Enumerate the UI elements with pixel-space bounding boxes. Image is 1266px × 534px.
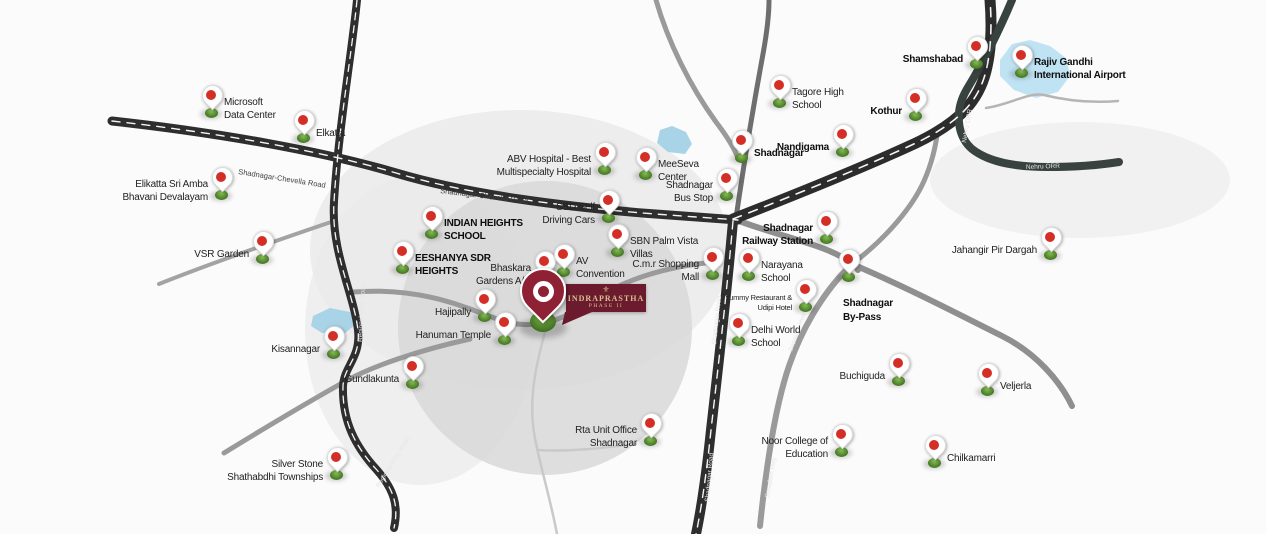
location-label-kisannagar: Kisannagar bbox=[271, 343, 320, 357]
location-label-yummy-restaurant-udipi-hotel: Yummy Restaurant &Udipi Hotel bbox=[725, 293, 792, 313]
pin-dot bbox=[216, 172, 226, 182]
pin-dot bbox=[743, 253, 753, 263]
location-label-silver-stone-shathabdhi-townships: Silver StoneShathabdhi Townships bbox=[227, 458, 323, 485]
location-map: Shadnagar-Chevella RoadShadnagar-Chevell… bbox=[0, 0, 1266, 534]
location-label-shadnagar-bus-stop: ShadnagarBus Stop bbox=[666, 179, 713, 206]
pin-dot bbox=[640, 152, 650, 162]
pin-core bbox=[538, 286, 549, 297]
pin-dot bbox=[206, 90, 216, 100]
pin-dot bbox=[843, 254, 853, 264]
location-label-jahangir-pir-dargah: Jahangir Pir Dargah bbox=[952, 244, 1037, 258]
pin-dot bbox=[603, 195, 613, 205]
pin-dot bbox=[257, 236, 267, 246]
pin-dot bbox=[397, 246, 407, 256]
airport-boundary-road bbox=[986, 95, 1118, 108]
shadnagar-town-road bbox=[736, 0, 769, 218]
location-label-cmr-shopping-mall: C.m.r ShoppingMall bbox=[632, 258, 699, 285]
pin-dot bbox=[558, 249, 568, 259]
property-phase: PHASE II bbox=[589, 303, 623, 310]
pin-dot bbox=[479, 294, 489, 304]
pin-dot bbox=[821, 216, 831, 226]
road-label: Shadnagar-Chevella Road bbox=[238, 167, 327, 190]
location-label-narayana-school: NarayanaSchool bbox=[761, 259, 803, 286]
pin-dot bbox=[929, 440, 939, 450]
property-crest-icon: ⚜ bbox=[602, 286, 609, 294]
location-label-gundlakunta: Gundlakunta bbox=[344, 373, 399, 387]
gray-road-southeast bbox=[852, 264, 1072, 406]
location-label-nandigama: Nandigama bbox=[777, 141, 829, 155]
location-label-hajipally: Hajipally bbox=[435, 306, 471, 320]
pin-dot bbox=[800, 284, 810, 294]
location-label-elikatta-sri-amba-bhavani-devalayam: Elikatta Sri AmbaBhavani Devalayam bbox=[122, 178, 208, 205]
pin-dot bbox=[837, 129, 847, 139]
property-name: INDRAPRASTHA bbox=[568, 294, 644, 303]
location-label-chilkamarri: Chilkamarri bbox=[947, 452, 995, 466]
location-label-tagore-high-school: Tagore HighSchool bbox=[792, 86, 844, 113]
pin-dot bbox=[499, 317, 509, 327]
location-label-shadnagar-by-pass: ShadnagarBy-Pass bbox=[843, 297, 893, 324]
location-label-rajiv-gandhi-international-airport: Rajiv GandhiInternational Airport bbox=[1034, 56, 1126, 83]
location-label-indian-heights-school: INDIAN HEIGHTSSCHOOL bbox=[444, 217, 523, 244]
pin-dot bbox=[893, 358, 903, 368]
location-label-shamshabad: Shamshabad bbox=[903, 53, 963, 67]
pin-dot bbox=[910, 93, 920, 103]
pin-dot bbox=[599, 147, 609, 157]
pin-dot bbox=[407, 361, 417, 371]
location-label-vsr-garden: VSR Garden bbox=[194, 248, 249, 262]
location-label-microsoft-data-center: MicrosoftData Center bbox=[224, 96, 276, 123]
pin-dot bbox=[736, 135, 746, 145]
pin-dot bbox=[733, 318, 743, 328]
pin-dot bbox=[982, 368, 992, 378]
pin-dot bbox=[539, 256, 549, 266]
location-label-kothur: Kothur bbox=[870, 105, 902, 119]
pin-dot bbox=[612, 229, 622, 239]
pin-dot bbox=[645, 418, 655, 428]
location-label-veljerla: Veljerla bbox=[1000, 380, 1031, 394]
pin-dot bbox=[721, 173, 731, 183]
location-label-elkatta: Elkatta bbox=[316, 127, 345, 141]
pin-dot bbox=[331, 452, 341, 462]
pin-dot bbox=[298, 115, 308, 125]
location-label-abv-hospital: ABV Hospital - BestMultispecialty Hospit… bbox=[497, 153, 591, 180]
pin-dot bbox=[1016, 50, 1026, 60]
property-flag[interactable]: ⚜ INDRAPRASTHA PHASE II bbox=[566, 284, 646, 312]
pin-dot bbox=[1045, 232, 1055, 242]
location-label-buchiguda: Buchiguda bbox=[840, 370, 885, 384]
location-label-noor-college-of-education: Noor College ofEducation bbox=[762, 435, 828, 462]
road-label: Nehru ORR bbox=[1026, 163, 1060, 171]
pin-dot bbox=[774, 80, 784, 90]
pin-dot bbox=[971, 41, 981, 51]
location-label-hanuman-temple: Hanuman Temple bbox=[416, 329, 491, 343]
location-label-rta-unit-office-shadnagar: Rta Unit OfficeShadnagar bbox=[575, 424, 637, 451]
pin-dot bbox=[426, 211, 436, 221]
location-label-shadnagar-railway-station: ShadnagarRailway Station bbox=[742, 222, 813, 249]
pin-dot bbox=[707, 252, 717, 262]
pin-dot bbox=[836, 429, 846, 439]
pin-dot bbox=[328, 331, 338, 341]
location-label-av-convention: AVConvention bbox=[576, 255, 625, 282]
location-label-delhi-world-school: Delhi WorldSchool bbox=[751, 324, 800, 351]
location-label-ssd-self-driving-cars: SSD SelfDriving Cars bbox=[542, 201, 595, 228]
